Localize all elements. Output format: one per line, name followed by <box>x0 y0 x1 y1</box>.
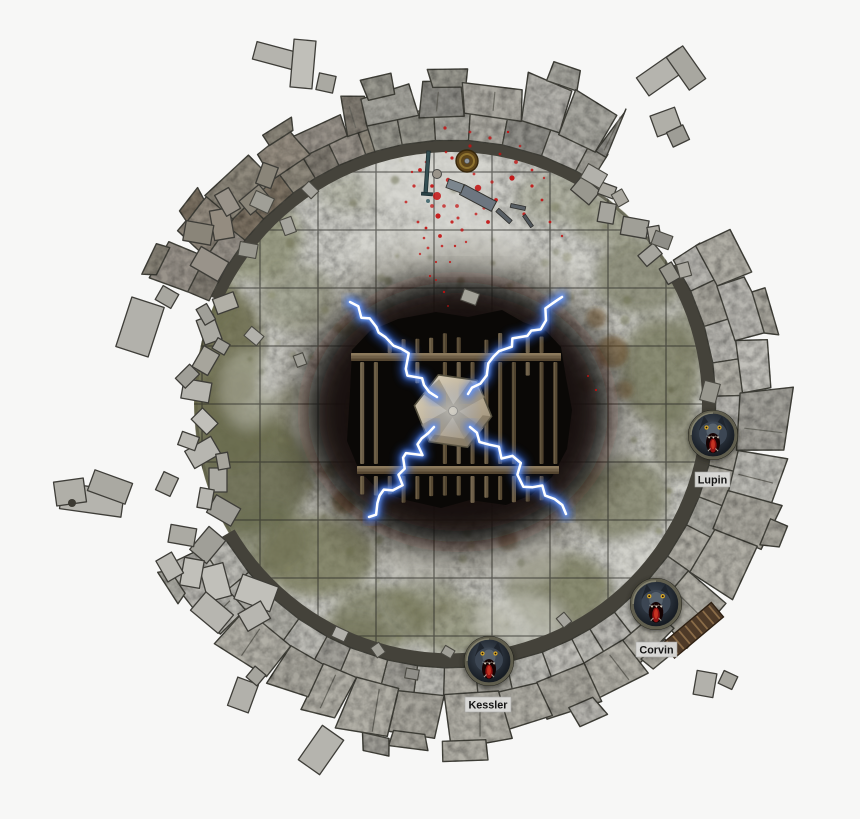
svg-text:Kessler: Kessler <box>468 700 508 712</box>
svg-text:Corvin: Corvin <box>639 645 673 657</box>
svg-text:Lupin: Lupin <box>698 475 727 487</box>
